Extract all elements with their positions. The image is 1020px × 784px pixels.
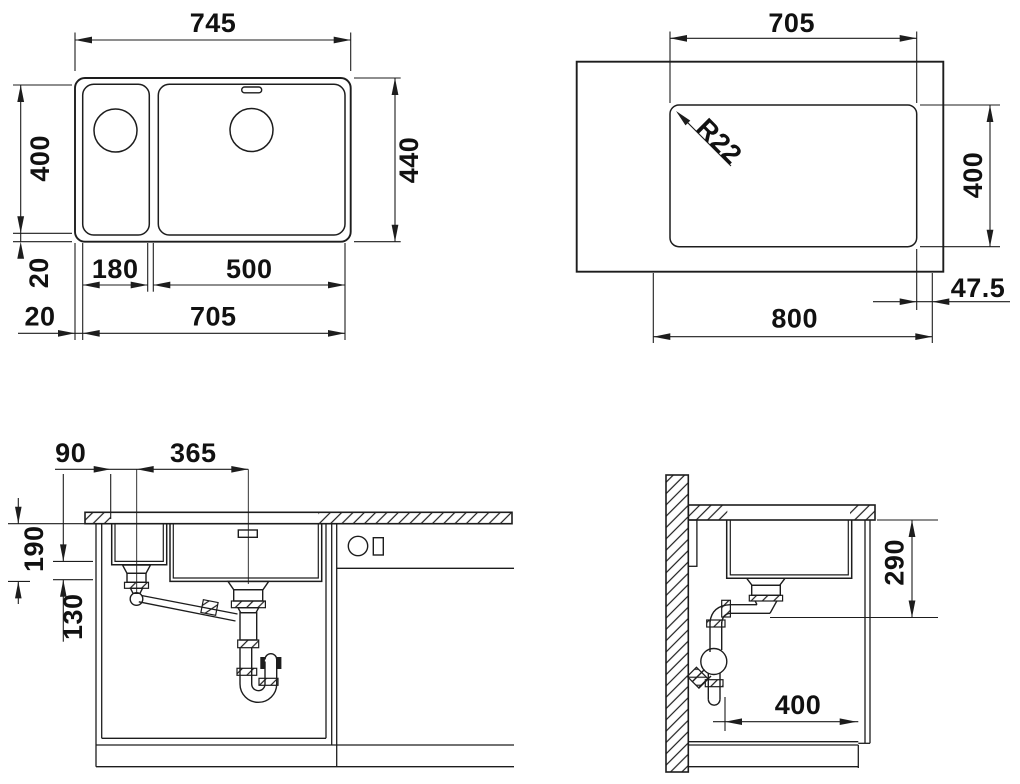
side-section-view: 290 400 xyxy=(666,475,938,772)
small-bowl xyxy=(83,84,150,235)
dim-main-bowl-depth: 190 xyxy=(19,525,49,572)
dim-rim-side: 20 xyxy=(24,302,55,332)
small-bowl-section xyxy=(112,524,167,565)
dim-main-bowl-width: 500 xyxy=(226,254,273,284)
main-bowl xyxy=(158,84,345,235)
main-bowl-section xyxy=(170,524,322,582)
dim-cutout-width: 705 xyxy=(768,8,815,38)
technical-drawing-page: 745 440 400 20 180 500 xyxy=(0,0,1020,784)
dim-drain-offset: 90 xyxy=(55,438,86,468)
cutout-view: 705 R22 400 800 47.5 xyxy=(577,8,1010,343)
dim-rim-depth: 20 xyxy=(24,257,54,288)
dim-overall-depth: 440 xyxy=(394,137,424,184)
sink-technical-drawing: 745 440 400 20 180 500 xyxy=(0,0,1020,784)
dim-clearance-depth: 290 xyxy=(880,539,910,586)
drain-plumbing-front xyxy=(123,565,282,702)
plan-view: 745 440 400 20 180 500 xyxy=(13,8,424,340)
overflow-slot xyxy=(242,87,262,93)
dim-small-bowl-width: 180 xyxy=(92,254,139,284)
small-bowl-drain xyxy=(94,109,137,152)
cabinet-side xyxy=(688,520,870,768)
countertop-outline xyxy=(577,62,944,272)
dim-edge-distance: 47.5 xyxy=(951,273,1006,303)
dim-small-bowl-depth: 130 xyxy=(58,593,88,640)
front-section-view: 90 365 190 130 xyxy=(8,438,514,767)
sink-cabinet xyxy=(96,524,514,767)
dim-drain-spacing: 365 xyxy=(170,438,217,468)
dim-cutout-width: 705 xyxy=(190,302,237,332)
faucet-hole xyxy=(348,536,367,555)
adjacent-unit xyxy=(337,524,514,767)
dim-min-cabinet-width: 800 xyxy=(771,304,818,334)
bowl-side-section xyxy=(727,520,852,578)
wall-section xyxy=(666,475,688,772)
sink-outline xyxy=(75,78,351,242)
switch-hole xyxy=(373,538,383,555)
overflow-section xyxy=(238,530,257,537)
dim-cutout-depth: 400 xyxy=(958,152,988,199)
main-bowl-drain xyxy=(230,109,273,152)
dim-overall-width: 745 xyxy=(190,8,237,38)
dim-corner-radius: R22 xyxy=(690,113,747,170)
dim-trap-clearance: 400 xyxy=(775,690,822,720)
drain-plumbing-side xyxy=(687,578,785,705)
support-batten xyxy=(688,520,697,566)
dim-inner-depth: 400 xyxy=(25,135,55,182)
